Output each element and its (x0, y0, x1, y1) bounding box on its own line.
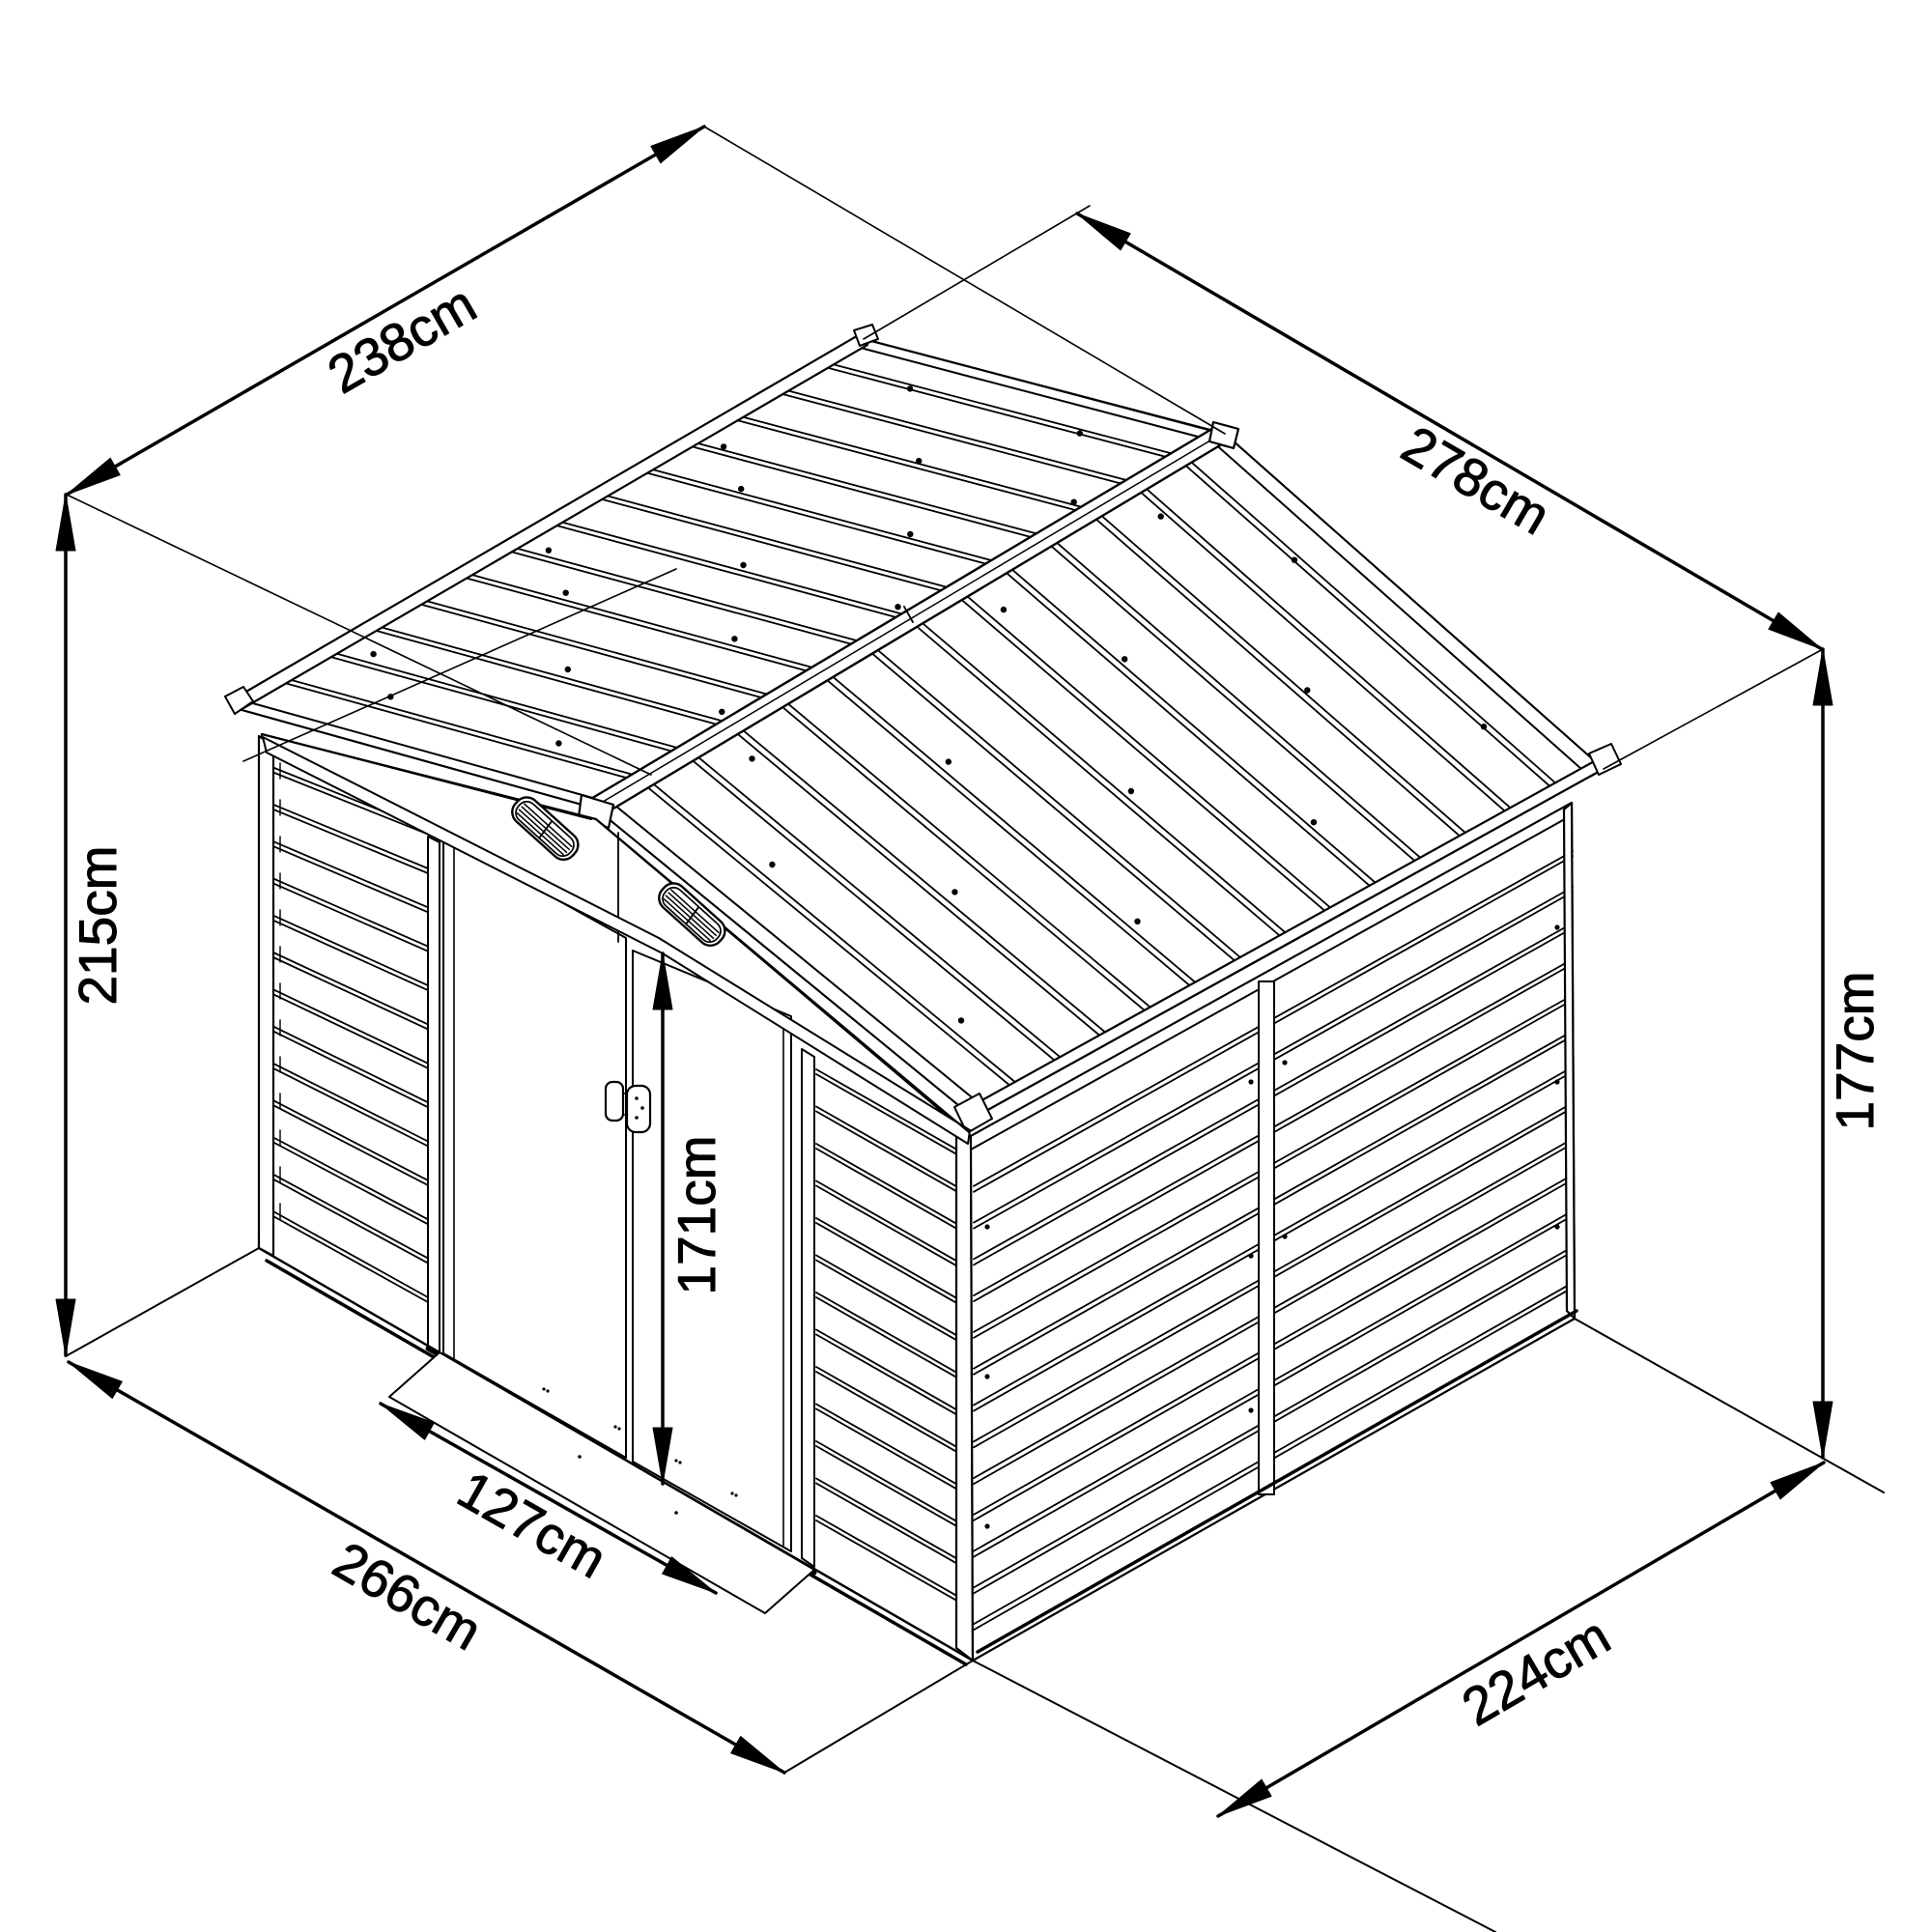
svg-text:171cm: 171cm (667, 1135, 726, 1294)
svg-text:215cm: 215cm (68, 845, 128, 1005)
svg-text:177cm: 177cm (1825, 971, 1885, 1130)
